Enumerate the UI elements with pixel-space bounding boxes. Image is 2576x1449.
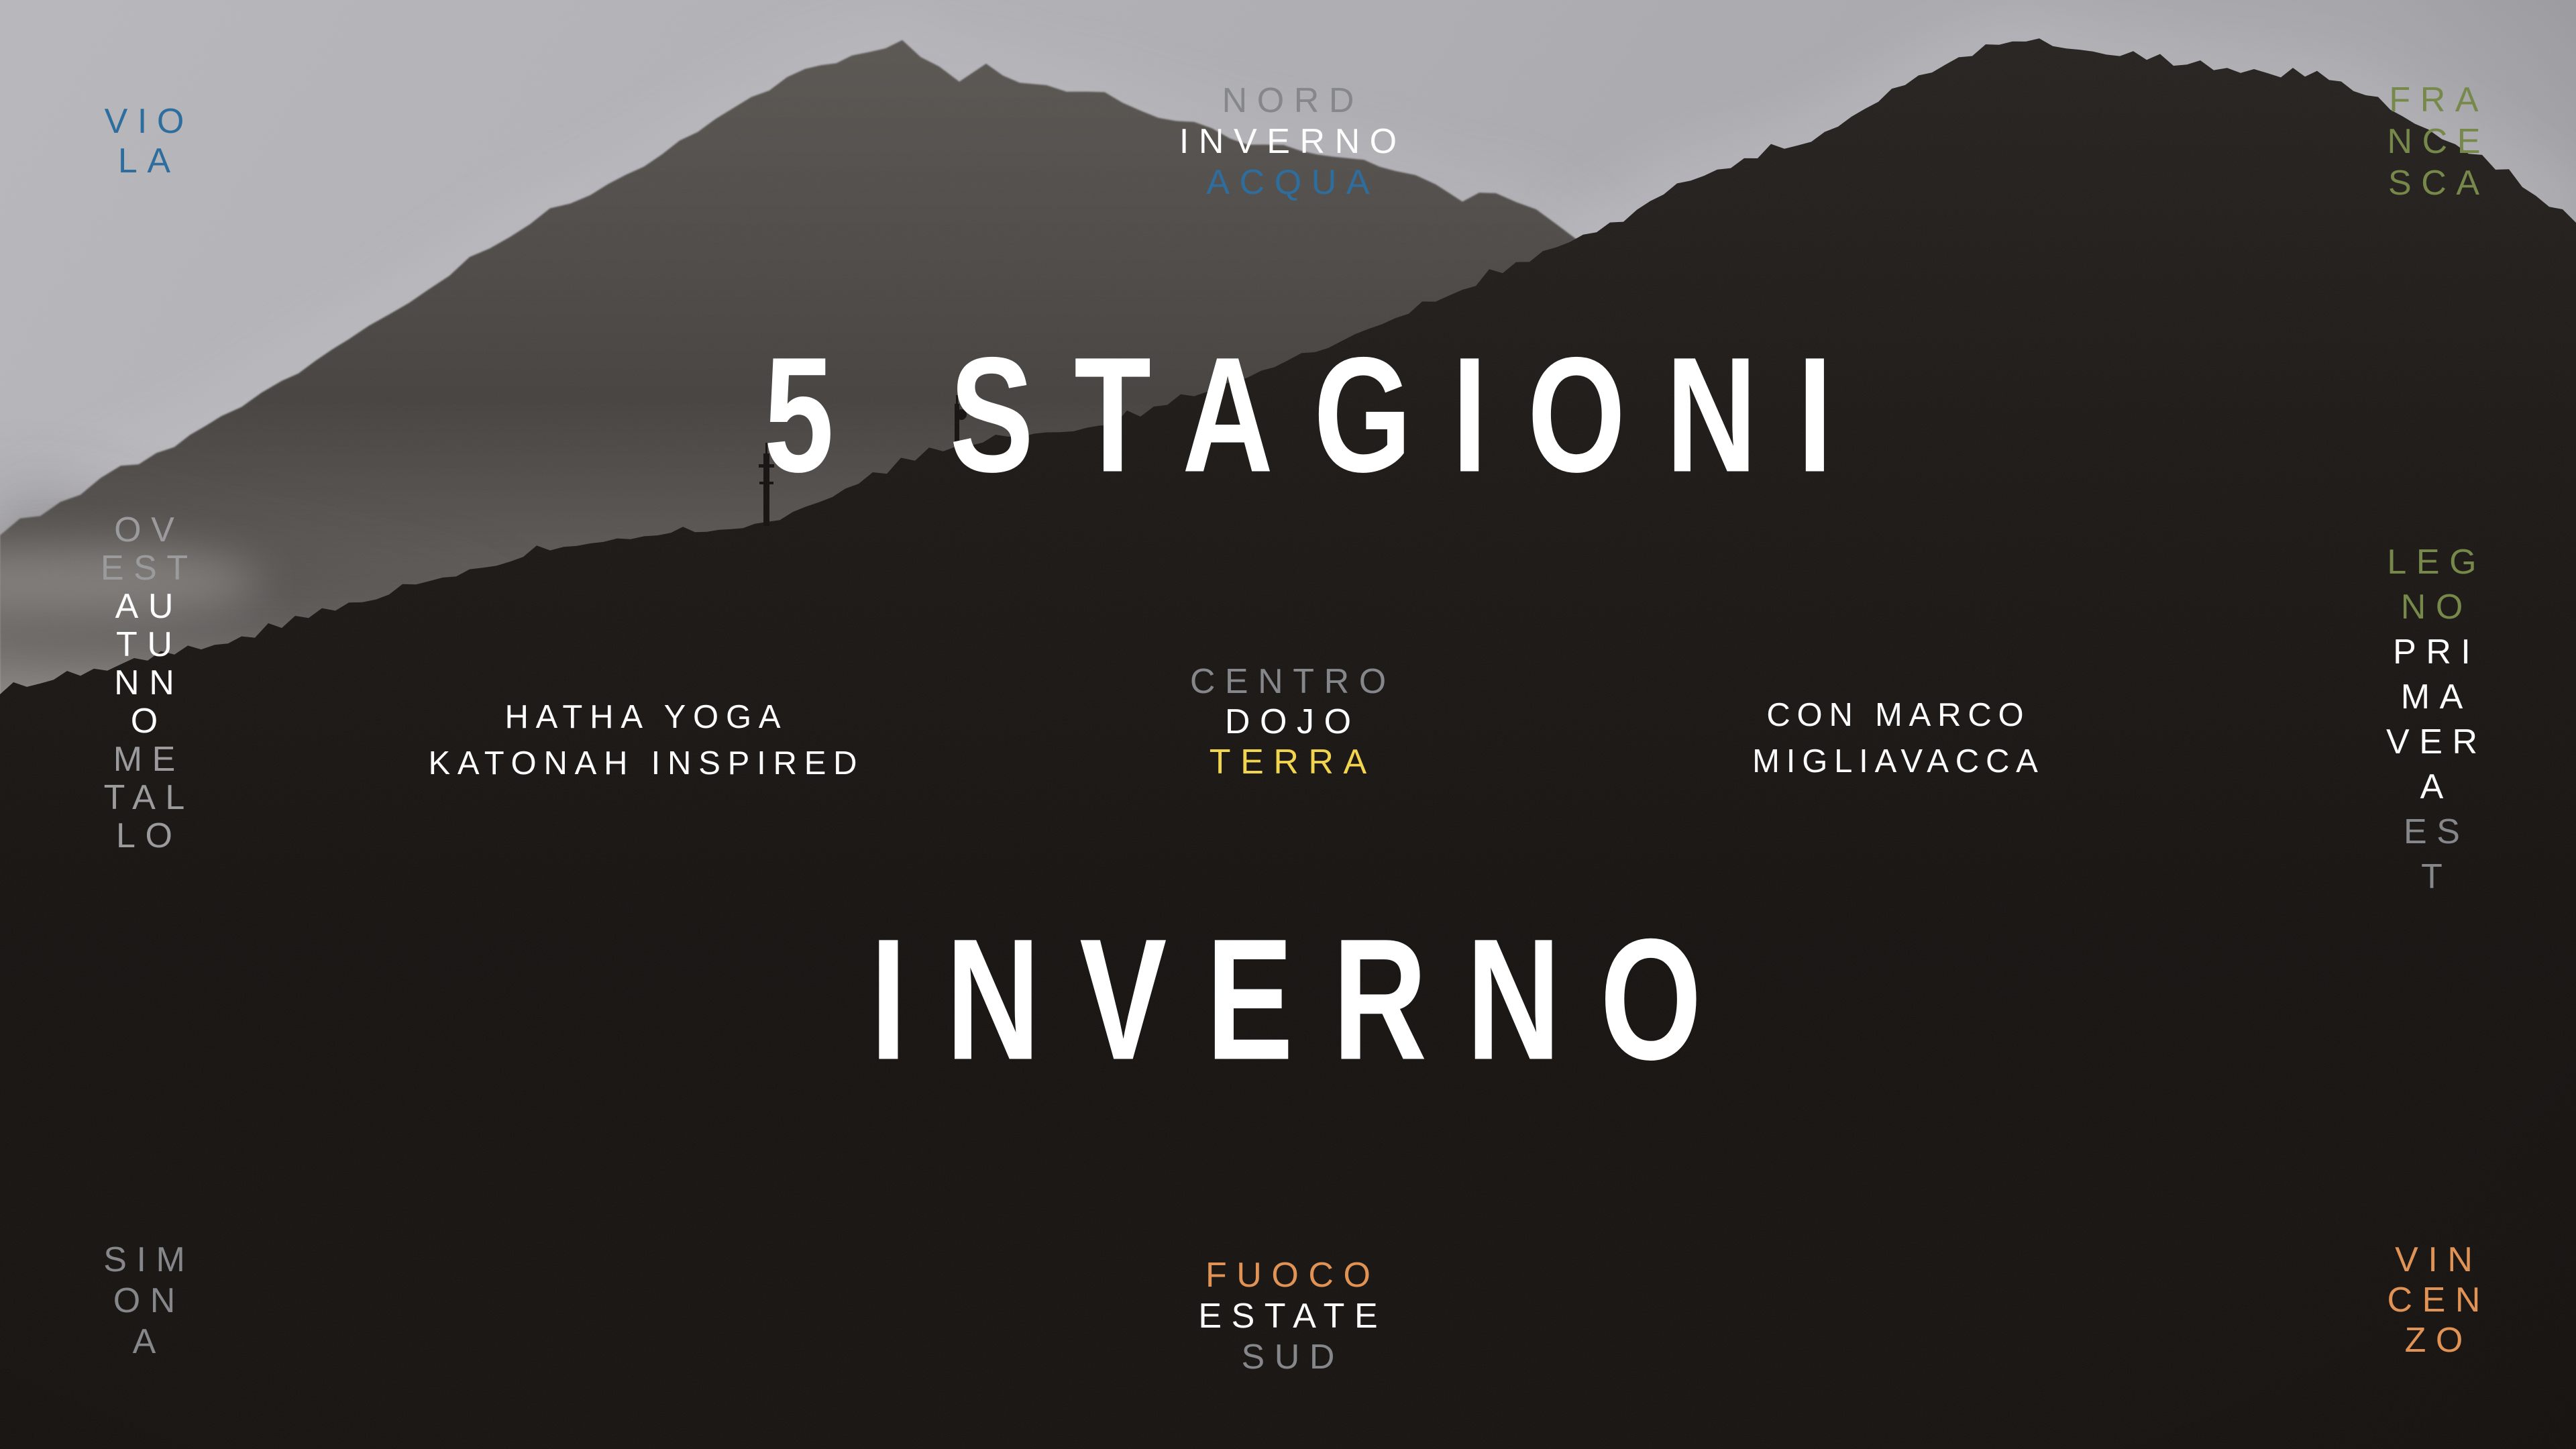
label-line: ZO	[2387, 1320, 2490, 1360]
label-line: MIGLIAVACCA	[1752, 739, 2044, 785]
label-line: NN	[101, 664, 198, 702]
label-line: MA	[2386, 675, 2487, 720]
label-line: LO	[101, 817, 198, 855]
label-line: A	[103, 1322, 195, 1362]
label-line: DOJO	[1190, 702, 1396, 742]
label-line: VIO	[105, 102, 194, 142]
label-line: HATHA YOGA	[428, 694, 864, 741]
label-line: VIN	[2387, 1240, 2490, 1280]
compass-south: FUOCOESTATESUD	[1189, 1255, 1387, 1378]
class-info: HATHA YOGAKATONAH INSPIRED	[421, 694, 865, 787]
label-line: ES	[2386, 810, 2487, 855]
label-line: ME	[101, 741, 198, 779]
label-line: FUOCO	[1198, 1255, 1387, 1296]
label-line: TAL	[101, 779, 198, 817]
label-line: KATONAH INSPIRED	[428, 741, 864, 787]
label-line: SCA	[2387, 162, 2490, 204]
label-line: LEG	[2386, 540, 2487, 585]
label-line: NCE	[2387, 121, 2490, 162]
label-line: LA	[105, 142, 194, 181]
label-line: NORD	[1179, 80, 1407, 121]
label-line: TERRA	[1190, 742, 1396, 782]
label-line: CON MARCO	[1752, 692, 2044, 739]
label-line: CEN	[2387, 1280, 2490, 1320]
label-line: A	[2386, 765, 2487, 810]
label-vincenzo: VINCENZO	[2377, 1240, 2490, 1360]
label-line: ON	[103, 1281, 195, 1322]
poster-canvas: VIOLA NORDINVERNOACQUA FRANCESCA OVESTAU…	[0, 0, 2576, 1449]
column-west-autumn-metal: OVESTAUTUNNOMETALLO	[91, 511, 197, 855]
label-viola: VIOLA	[95, 102, 194, 181]
column-wood-spring-east: LEGNOPRIMAVERAEST	[2376, 540, 2487, 900]
label-line: PRI	[2386, 630, 2487, 675]
poster-title: 5 STAGIONI	[723, 321, 1872, 509]
label-line: TU	[101, 626, 198, 664]
label-line: NO	[2386, 585, 2487, 630]
label-line: SUD	[1198, 1337, 1387, 1378]
label-line: ESTATE	[1198, 1296, 1387, 1337]
label-line: VER	[2386, 720, 2487, 765]
teacher-info: CON MARCOMIGLIAVACCA	[1746, 692, 2044, 785]
label-line: O	[101, 702, 198, 741]
compass-center: CENTRODOJOTERRA	[1180, 661, 1395, 782]
label-line: INVERNO	[1179, 121, 1407, 162]
label-line: SIM	[103, 1240, 195, 1281]
label-line: ACQUA	[1179, 162, 1407, 203]
label-francesca: FRANCESCA	[2377, 79, 2490, 204]
label-line: OV	[101, 511, 198, 549]
label-line: FRA	[2387, 79, 2490, 121]
label-simona: SIMONA	[94, 1240, 195, 1362]
label-line: CENTRO	[1190, 661, 1396, 702]
poster-season-title: INVERNO	[831, 900, 1741, 1099]
compass-north: NORDINVERNOACQUA	[1169, 80, 1406, 203]
label-line: T	[2386, 855, 2487, 900]
label-line: EST	[101, 549, 198, 588]
label-line: AU	[101, 588, 198, 626]
